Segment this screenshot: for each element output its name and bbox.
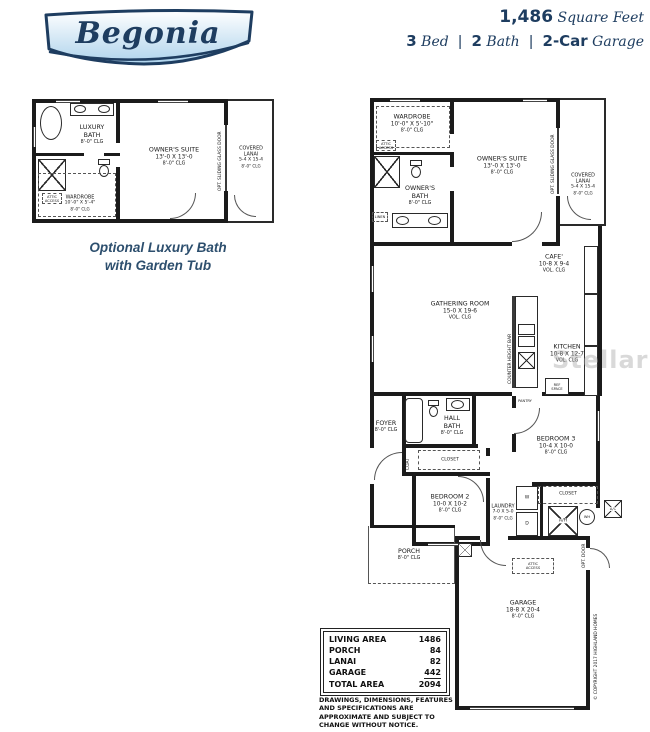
attic-access-label: ATTIC ACCESS xyxy=(45,195,59,203)
plan-stats: 1,486 Square Feet 3 Bed | 2 Bath | 2-Car… xyxy=(406,7,644,51)
attic-access-label: ATTIC ACCESS xyxy=(379,142,393,150)
ac-label: A/C xyxy=(609,507,617,511)
wall-segment xyxy=(370,392,512,396)
linen-label: LINEN xyxy=(375,215,386,219)
room-label-owners-bath: OWNER'S BATH 8'-0" CLG xyxy=(405,185,435,207)
wall-segment xyxy=(486,478,490,546)
table-row: LIVING AREA 1486 xyxy=(329,634,441,645)
kitchen-sink xyxy=(518,336,535,347)
wall-segment xyxy=(36,153,84,156)
table-row: TOTAL AREA 2094 xyxy=(329,679,441,690)
table-row: PORCH 84 xyxy=(329,645,441,656)
window xyxy=(390,99,420,102)
plan-title: Begonia xyxy=(36,16,260,51)
wall-segment xyxy=(450,191,454,242)
room-label-garage: GARAGE 18-8 X 20-4 8'-0" CLG xyxy=(506,599,540,620)
caption-line2: with Garden Tub xyxy=(28,257,288,275)
room-label-owners-suite: OWNER'S SUITE 13'-0 X 13'-0 8'-0" CLG xyxy=(149,146,199,167)
wall-segment xyxy=(402,444,478,448)
bath-label: Bath xyxy=(486,34,519,50)
main-floor-plan: WARDROBE 10'-0" X 5'-10" 8'-0" CLG ATTIC… xyxy=(362,96,650,720)
bed-bath-garage-row: 3 Bed | 2 Bath | 2-Car Garage xyxy=(406,32,644,51)
wall-segment xyxy=(370,525,455,528)
closet-label: CLOSET xyxy=(441,457,459,462)
room-label-wardrobe: WARDROBE 10'-0" X 5'-10" 8'-0" CLG xyxy=(391,113,434,134)
separator: | xyxy=(453,33,467,50)
ref-space-label: REF SPACE xyxy=(551,383,562,391)
window xyxy=(158,100,188,103)
counter xyxy=(584,294,598,346)
room-label-foyer: FOYER 8'-0" CLG xyxy=(375,420,398,434)
coat-closet-label: COAT xyxy=(406,458,411,470)
room-label-gathering-room: GATHERING ROOM 15-0 X 19-6 VOL. CLG xyxy=(431,300,490,321)
floor-plan-page: Begonia 1,486 Square Feet 3 Bed | 2 Bath… xyxy=(0,0,650,732)
sqft-label: Square Feet xyxy=(558,10,645,26)
pantry-label: PANTRY xyxy=(518,399,532,403)
shower xyxy=(374,156,400,188)
copyright-label: © COPYRIGHT 2017 HIGHLAND HOMES xyxy=(594,614,599,700)
watermark: StellarMLS xyxy=(552,346,650,374)
opt-sliding-door-label: OPT. SLIDING GLASS DOOR xyxy=(218,131,223,191)
counter-height-bar-label: COUNTER HEIGHT BAR xyxy=(508,334,513,384)
bath-value: 2 xyxy=(472,32,482,50)
tub xyxy=(405,398,423,443)
sliding-glass-door xyxy=(225,125,227,191)
wall-segment xyxy=(512,396,516,408)
room-label-owners-suite: OWNER'S SUITE 13'-0 X 13'-0 8'-0" CLG xyxy=(477,155,527,176)
washer-label: W xyxy=(525,495,530,500)
door-swing xyxy=(514,408,540,434)
area-table: LIVING AREA 1486 PORCH 84 LANAI 82 GARAG… xyxy=(320,628,450,696)
opt-door-label: OPT. DOOR xyxy=(582,544,587,568)
toilet-bowl xyxy=(429,406,438,417)
window xyxy=(523,99,547,102)
bed-label: Bed xyxy=(421,34,449,50)
range xyxy=(518,352,535,369)
garage-value: 2-Car xyxy=(543,32,588,50)
wall-segment xyxy=(586,570,590,710)
inset-floor-plan: LUXURY BATH 8'-0" CLG OWNER'S SUITE 13'-… xyxy=(28,97,288,229)
wall-segment xyxy=(512,434,516,452)
wall-segment xyxy=(450,155,454,167)
room-label-laundry: LAUNDRY 7-0 X 5-0 8'-0" CLG xyxy=(491,504,514,521)
plan-name-banner: Begonia xyxy=(36,5,260,71)
sink xyxy=(74,105,86,113)
wall-segment xyxy=(116,167,120,219)
wall-segment xyxy=(542,242,560,246)
sqft-row: 1,486 Square Feet xyxy=(406,7,644,27)
door-swing xyxy=(170,193,196,219)
closet-label: CLOSET xyxy=(559,491,577,496)
window xyxy=(371,266,374,292)
toilet-bowl xyxy=(411,166,421,178)
sink xyxy=(396,216,409,225)
room-label-covered-lanai: COVERED LANAI 5-4 X 15-4 8'-0" CLG xyxy=(239,145,263,168)
kitchen-sink xyxy=(518,324,535,335)
garage-door xyxy=(470,707,574,710)
air-handler-label: A/H xyxy=(558,518,568,523)
separator: | xyxy=(524,33,538,50)
room-label-luxury-bath: LUXURY BATH 8'-0" CLG xyxy=(80,124,105,146)
wall-segment xyxy=(450,102,454,134)
sink xyxy=(451,400,464,409)
wall-segment xyxy=(486,448,490,456)
room-label-bedroom3: BEDROOM 3 10-4 X 10-0 8'-0" CLG xyxy=(537,435,576,456)
wall-segment xyxy=(508,536,590,540)
sink xyxy=(98,105,110,113)
wall-segment xyxy=(116,99,120,143)
sliding-glass-door xyxy=(557,128,559,194)
wall-segment xyxy=(370,242,512,246)
entry-door-swing xyxy=(374,452,402,480)
room-label-porch: PORCH 8'-0" CLG xyxy=(398,548,421,562)
attic-access-label: ATTIC ACCESS xyxy=(526,562,540,570)
disclaimer-text: DRAWINGS, DIMENSIONS, FEATURES AND SPECI… xyxy=(319,696,461,730)
bed-value: 3 xyxy=(406,32,416,50)
window xyxy=(597,411,600,441)
table-row: GARAGE 442 xyxy=(329,667,441,679)
opt-door-swing xyxy=(590,548,610,568)
room-label-covered-lanai: COVERED LANAI 5-4 X 15-4 8'-0" CLG xyxy=(571,172,595,195)
room-label-cafe: CAFE' 10-8 X 9-4 VOL. CLG xyxy=(539,253,569,274)
room-label-hall-bath: HALL BATH 8'-0" CLG xyxy=(441,415,464,437)
garage-label: Garage xyxy=(592,34,644,50)
counter xyxy=(584,246,598,294)
wall-segment xyxy=(370,484,374,528)
room-label-wardrobe: WARDROBE 10'-0" X 5'-4" 8'-0" CLG xyxy=(65,195,96,212)
wall-segment xyxy=(104,153,120,156)
door-swing xyxy=(480,540,506,566)
window xyxy=(428,543,462,546)
opt-sliding-door-label: OPT. SLIDING GLASS DOOR xyxy=(551,134,556,194)
sqft-value: 1,486 xyxy=(499,7,553,27)
wall-segment xyxy=(455,536,459,710)
caption-line1: Optional Luxury Bath xyxy=(28,239,288,257)
window xyxy=(371,336,374,362)
wall-segment xyxy=(32,99,36,223)
inset-caption: Optional Luxury Bath with Garden Tub xyxy=(28,239,288,274)
window xyxy=(33,127,36,147)
garden-tub xyxy=(40,106,62,140)
wall-segment xyxy=(472,396,476,446)
water-heater-label: WH xyxy=(584,515,590,519)
dryer-label: D xyxy=(525,521,529,526)
wall-segment xyxy=(370,152,454,155)
area-table-inner: LIVING AREA 1486 PORCH 84 LANAI 82 GARAG… xyxy=(323,631,447,693)
door-swing xyxy=(512,212,542,242)
wall-segment xyxy=(32,219,228,223)
room-label-bedroom2: BEDROOM 2 10-0 X 10-2 8'-0" CLG xyxy=(431,493,470,514)
sink xyxy=(428,216,441,225)
table-row: LANAI 82 xyxy=(329,656,441,667)
utility-box xyxy=(458,543,472,557)
